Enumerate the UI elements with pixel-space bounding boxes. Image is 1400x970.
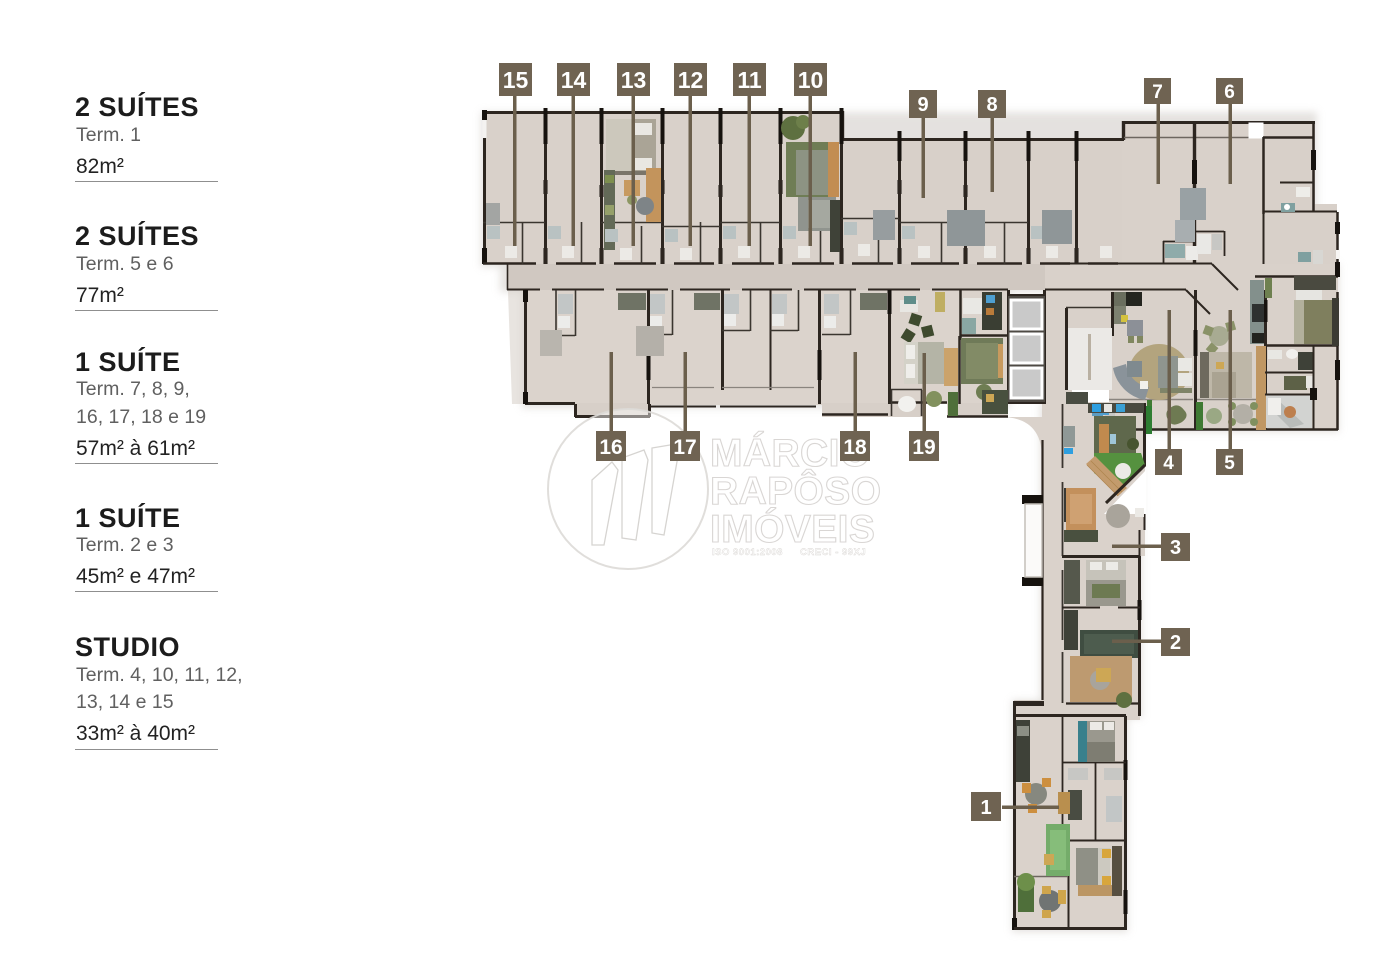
svg-text:5: 5 bbox=[1224, 453, 1235, 474]
svg-text:2: 2 bbox=[1170, 632, 1181, 654]
svg-text:ISO 9001:2008: ISO 9001:2008 bbox=[712, 547, 783, 558]
svg-text:3: 3 bbox=[1170, 537, 1181, 559]
svg-text:1: 1 bbox=[980, 797, 991, 819]
svg-text:19: 19 bbox=[912, 436, 935, 459]
svg-text:8: 8 bbox=[986, 94, 997, 116]
svg-text:9: 9 bbox=[917, 94, 928, 116]
svg-text:16: 16 bbox=[599, 436, 622, 459]
svg-text:RAPÔSO: RAPÔSO bbox=[710, 468, 881, 513]
svg-text:10: 10 bbox=[798, 67, 824, 93]
svg-text:7: 7 bbox=[1152, 82, 1163, 103]
svg-text:18: 18 bbox=[843, 436, 867, 459]
svg-text:IMÓVEIS: IMÓVEIS bbox=[710, 507, 875, 551]
svg-text:6: 6 bbox=[1224, 82, 1235, 103]
svg-text:12: 12 bbox=[678, 67, 704, 93]
svg-text:CRECI - 99XJ: CRECI - 99XJ bbox=[800, 547, 866, 558]
svg-text:13: 13 bbox=[621, 67, 647, 93]
svg-text:15: 15 bbox=[503, 67, 529, 93]
svg-text:17: 17 bbox=[673, 436, 696, 459]
svg-text:14: 14 bbox=[561, 67, 587, 93]
svg-text:4: 4 bbox=[1163, 453, 1174, 474]
svg-text:11: 11 bbox=[737, 67, 762, 93]
